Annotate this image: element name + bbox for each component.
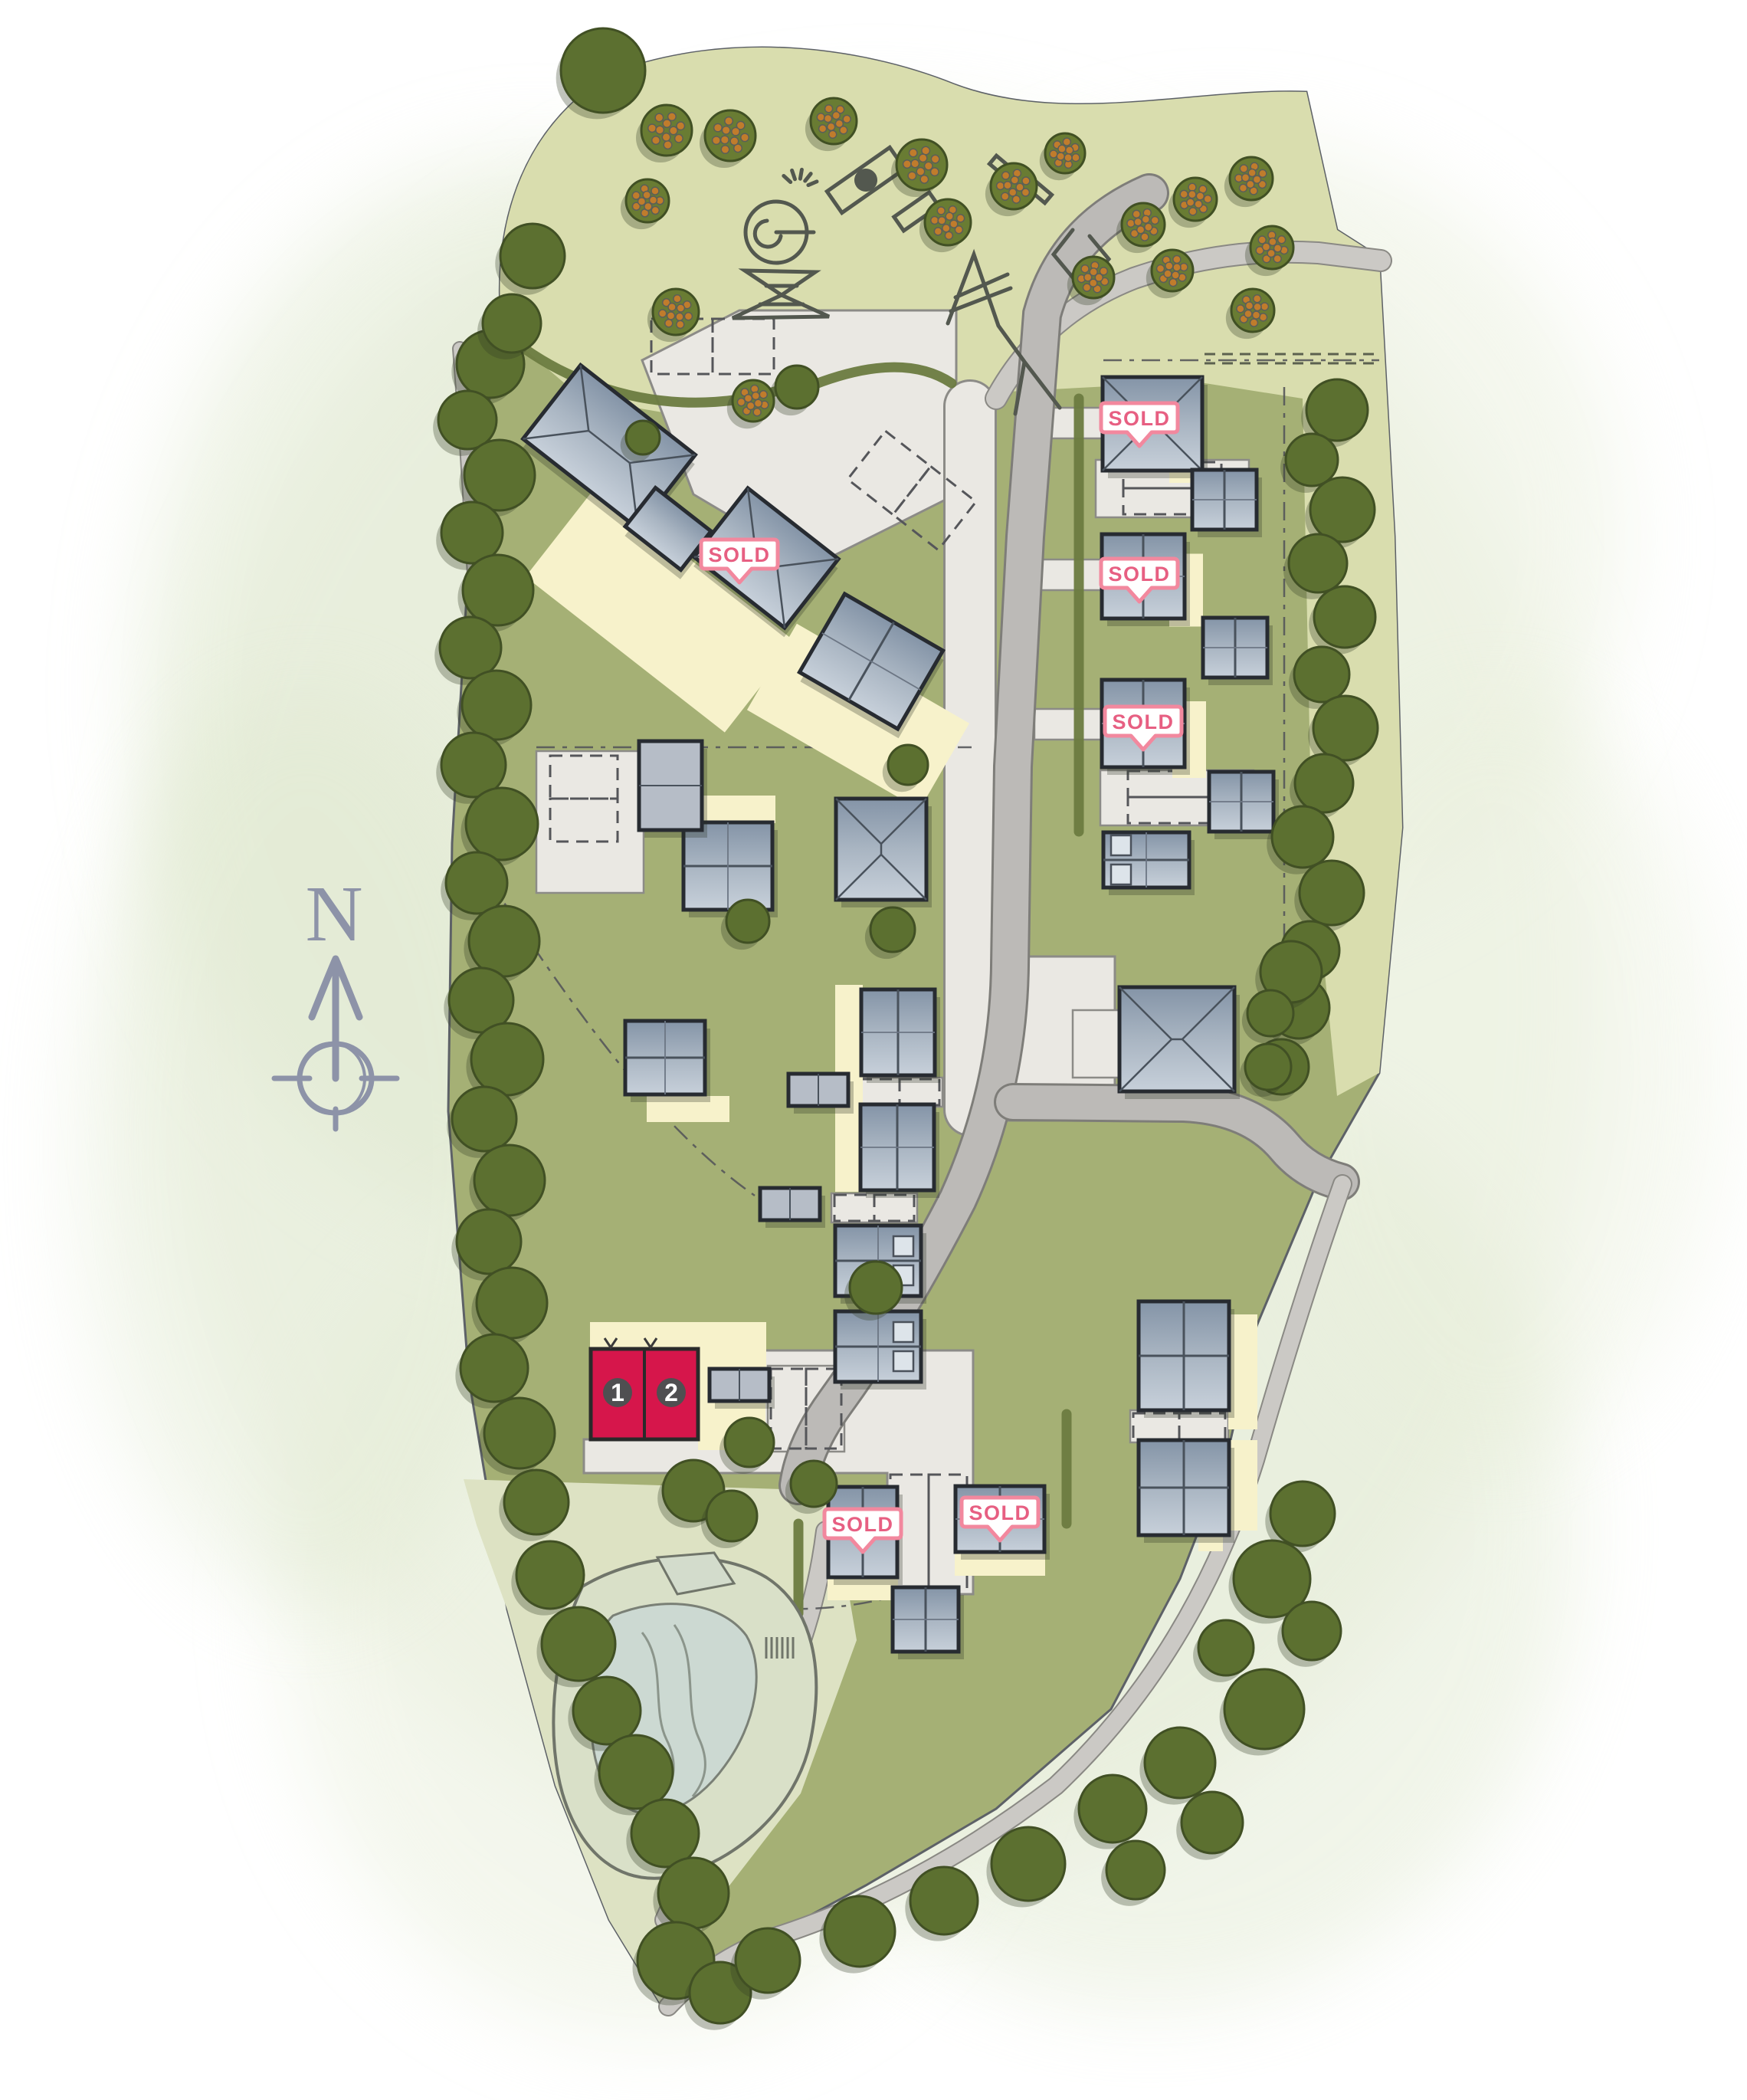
sold-badge-label: SOLD bbox=[831, 1513, 893, 1536]
sold-badge-label: SOLD bbox=[1112, 710, 1174, 733]
driveway bbox=[1034, 559, 1105, 590]
house-building bbox=[835, 1311, 926, 1390]
house-building bbox=[1209, 772, 1279, 839]
garage-building bbox=[760, 1188, 825, 1228]
rooflight-icon bbox=[893, 1236, 913, 1256]
sold-badge-label: SOLD bbox=[1108, 407, 1170, 430]
house-building bbox=[1139, 1301, 1234, 1418]
house-building bbox=[836, 799, 932, 907]
sold-badge-label: SOLD bbox=[969, 1501, 1031, 1524]
sold-badge-label: SOLD bbox=[708, 543, 770, 566]
driveway bbox=[1034, 709, 1105, 740]
driveway bbox=[536, 751, 644, 893]
house-building bbox=[861, 989, 940, 1083]
plot-number-label: 2 bbox=[664, 1379, 678, 1406]
compass-north-label: N bbox=[305, 870, 362, 958]
house-building bbox=[1203, 618, 1273, 685]
plot-marker-2[interactable]: 2 bbox=[657, 1378, 686, 1407]
house-building bbox=[1192, 470, 1262, 537]
house-building bbox=[1139, 1440, 1234, 1543]
garage-building bbox=[639, 741, 707, 838]
house-building bbox=[860, 1104, 939, 1198]
house-building bbox=[1119, 987, 1240, 1099]
site-plan-svg: 12SOLDSOLDSOLDSOLDSOLDSOLD N bbox=[0, 0, 1747, 2100]
house-building bbox=[893, 1587, 964, 1659]
garage-building bbox=[710, 1369, 775, 1409]
plot-marker-1[interactable]: 1 bbox=[603, 1378, 632, 1407]
plot-number-label: 1 bbox=[611, 1379, 624, 1406]
house-building bbox=[625, 1021, 710, 1102]
sold-badge-label: SOLD bbox=[1108, 563, 1170, 586]
garage-building bbox=[788, 1074, 854, 1114]
spring-rider-icon bbox=[800, 169, 801, 179]
rooflight-icon bbox=[1111, 865, 1131, 884]
rooflight-icon bbox=[893, 1322, 913, 1342]
house-building bbox=[1103, 832, 1195, 895]
rooflight-icon bbox=[893, 1351, 913, 1371]
site-plan-page: 12SOLDSOLDSOLDSOLDSOLDSOLD N bbox=[0, 0, 1747, 2100]
rooflight-icon bbox=[1111, 835, 1131, 855]
